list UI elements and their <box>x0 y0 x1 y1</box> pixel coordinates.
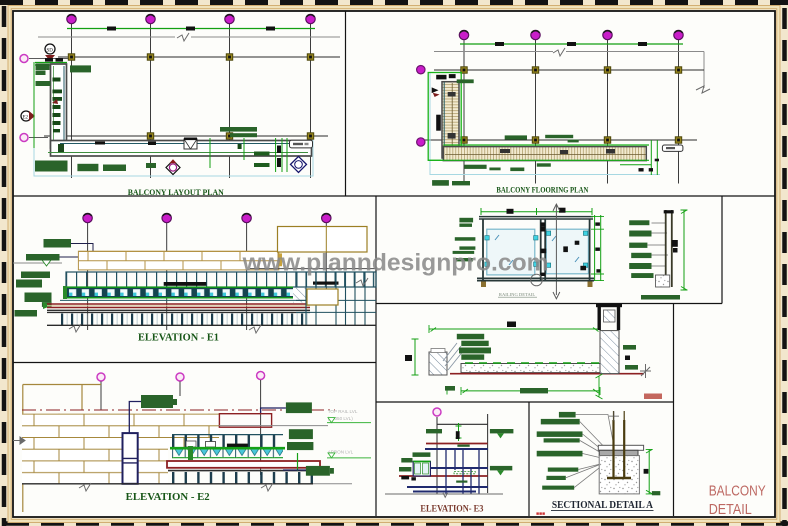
svg-text:ELEVATION - E1: ELEVATION - E1 <box>138 333 219 344</box>
svg-text:www.planndesignpro.com: www.planndesignpro.com <box>242 250 549 277</box>
svg-text:ELEVATION - E2: ELEVATION - E2 <box>126 492 210 503</box>
svg-text:SECTIONAL DETAIL A: SECTIONAL DETAIL A <box>552 500 654 511</box>
svg-text:SD: SD <box>47 49 54 54</box>
svg-text:■■■: ■■■ <box>536 511 545 517</box>
svg-text:E2: E2 <box>23 116 29 121</box>
svg-text:DETAIL: DETAIL <box>709 502 752 518</box>
svg-text:RAILING DETAIL: RAILING DETAIL <box>499 292 535 297</box>
svg-text:TOP RAIL LVL: TOP RAIL LVL <box>328 409 358 414</box>
svg-text:BALCONY FLOORING PLAN: BALCONY FLOORING PLAN <box>496 185 588 194</box>
svg-text:BALCONY: BALCONY <box>709 484 766 500</box>
svg-text:ELEVATION- E3: ELEVATION- E3 <box>420 503 483 513</box>
svg-text:BALCONY LAYOUT PLAN: BALCONY LAYOUT PLAN <box>128 188 224 197</box>
